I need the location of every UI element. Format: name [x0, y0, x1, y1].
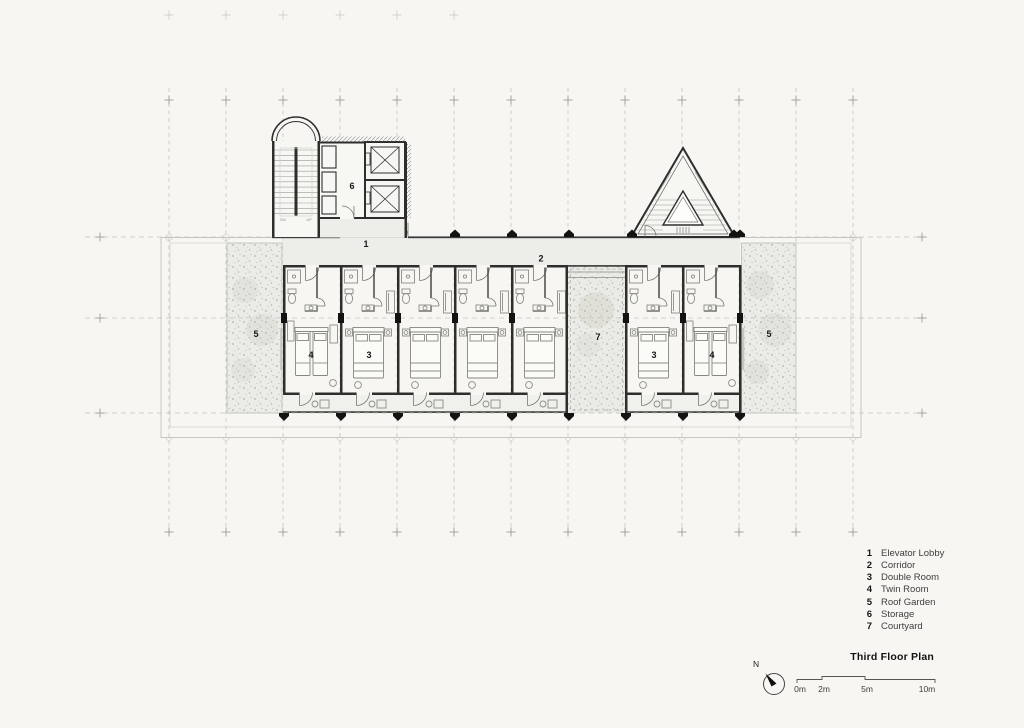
legend-label: Double Room — [881, 572, 939, 584]
legend-label: Twin Room — [881, 584, 929, 596]
room-double-3 — [454, 265, 511, 408]
room-double-right — [625, 265, 682, 408]
corridor — [283, 238, 740, 265]
guest-rooms — [283, 265, 742, 413]
legend-num: 3 — [862, 572, 872, 584]
legend-row: 7Courtyard — [862, 621, 944, 633]
label-roof-garden-left: 5 — [253, 329, 258, 339]
legend-row: 5Roof Garden — [862, 597, 944, 609]
room-double-1 — [340, 265, 397, 408]
elevator-shafts — [365, 142, 405, 218]
room-double-2 — [397, 265, 454, 408]
roof-garden-right — [742, 243, 797, 413]
legend-num: 7 — [862, 621, 872, 633]
label-courtyard: 7 — [595, 332, 600, 342]
legend-label: Roof Garden — [881, 597, 935, 609]
triangle-stair — [627, 148, 739, 237]
scale-2m: 2m — [818, 684, 830, 694]
label-corridor: 2 — [538, 254, 543, 264]
legend-row: 1Elevator Lobby — [862, 548, 944, 560]
legend-num: 6 — [862, 609, 872, 621]
legend-row: 4Twin Room — [862, 584, 944, 596]
north-arrow-icon — [764, 674, 785, 695]
scale-10m: 10m — [919, 684, 936, 694]
label-storage: 6 — [349, 181, 354, 191]
legend-label: Storage — [881, 609, 914, 621]
stair-up-text: UP — [306, 218, 312, 222]
legend-num: 1 — [862, 548, 872, 560]
scale-0m: 0m — [794, 684, 806, 694]
legend-row: 6Storage — [862, 609, 944, 621]
legend-row: 3Double Room — [862, 572, 944, 584]
scale-bar: 0m 2m 5m 10m — [794, 677, 935, 695]
roof-garden-left — [227, 243, 283, 413]
north-label: N — [753, 659, 759, 669]
legend-row: 2Corridor — [862, 560, 944, 572]
legend-num: 2 — [862, 560, 872, 572]
wall-hatch-top — [322, 137, 405, 142]
legend-label: Elevator Lobby — [881, 548, 944, 560]
stair-tower: DN UP — [272, 117, 411, 238]
legend-label: Courtyard — [881, 621, 923, 633]
floor-plan-sheet: DN UP — [0, 0, 1024, 728]
label-elevator-lobby: 1 — [363, 239, 368, 249]
room-twin-left — [283, 265, 340, 408]
stair-down-text: DN — [280, 218, 286, 222]
wall-hatch-right — [407, 144, 412, 218]
plan-title: Third Floor Plan — [818, 651, 934, 663]
balcony-strip — [283, 395, 740, 413]
label-double-room-right: 3 — [651, 350, 656, 360]
room-double-4 — [511, 265, 568, 408]
scale-5m: 5m — [861, 684, 873, 694]
legend-label: Corridor — [881, 560, 915, 572]
legend: 1Elevator Lobby 2Corridor 3Double Room 4… — [862, 548, 944, 633]
legend-num: 5 — [862, 597, 872, 609]
stair-stringer — [295, 147, 298, 216]
label-double-room-left: 3 — [366, 350, 371, 360]
legend-num: 4 — [862, 584, 872, 596]
label-twin-room-right: 4 — [709, 350, 714, 360]
label-twin-room-left: 4 — [308, 350, 313, 360]
elevator-lobby-floor — [320, 219, 405, 238]
label-roof-garden-right: 5 — [766, 329, 771, 339]
room-twin-right — [682, 265, 739, 408]
